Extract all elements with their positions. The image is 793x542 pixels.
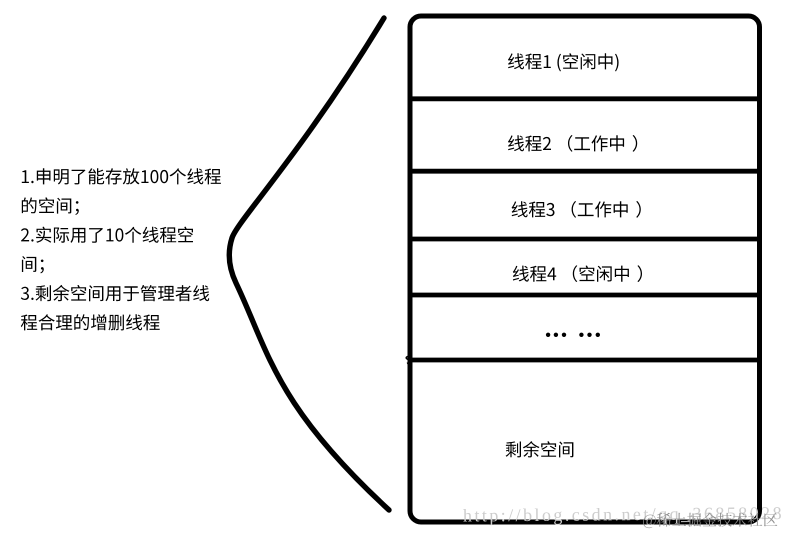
svg-text:http://blog.csdn.net/qq_368580: http://blog.csdn.net/qq_36858028: [463, 503, 784, 526]
